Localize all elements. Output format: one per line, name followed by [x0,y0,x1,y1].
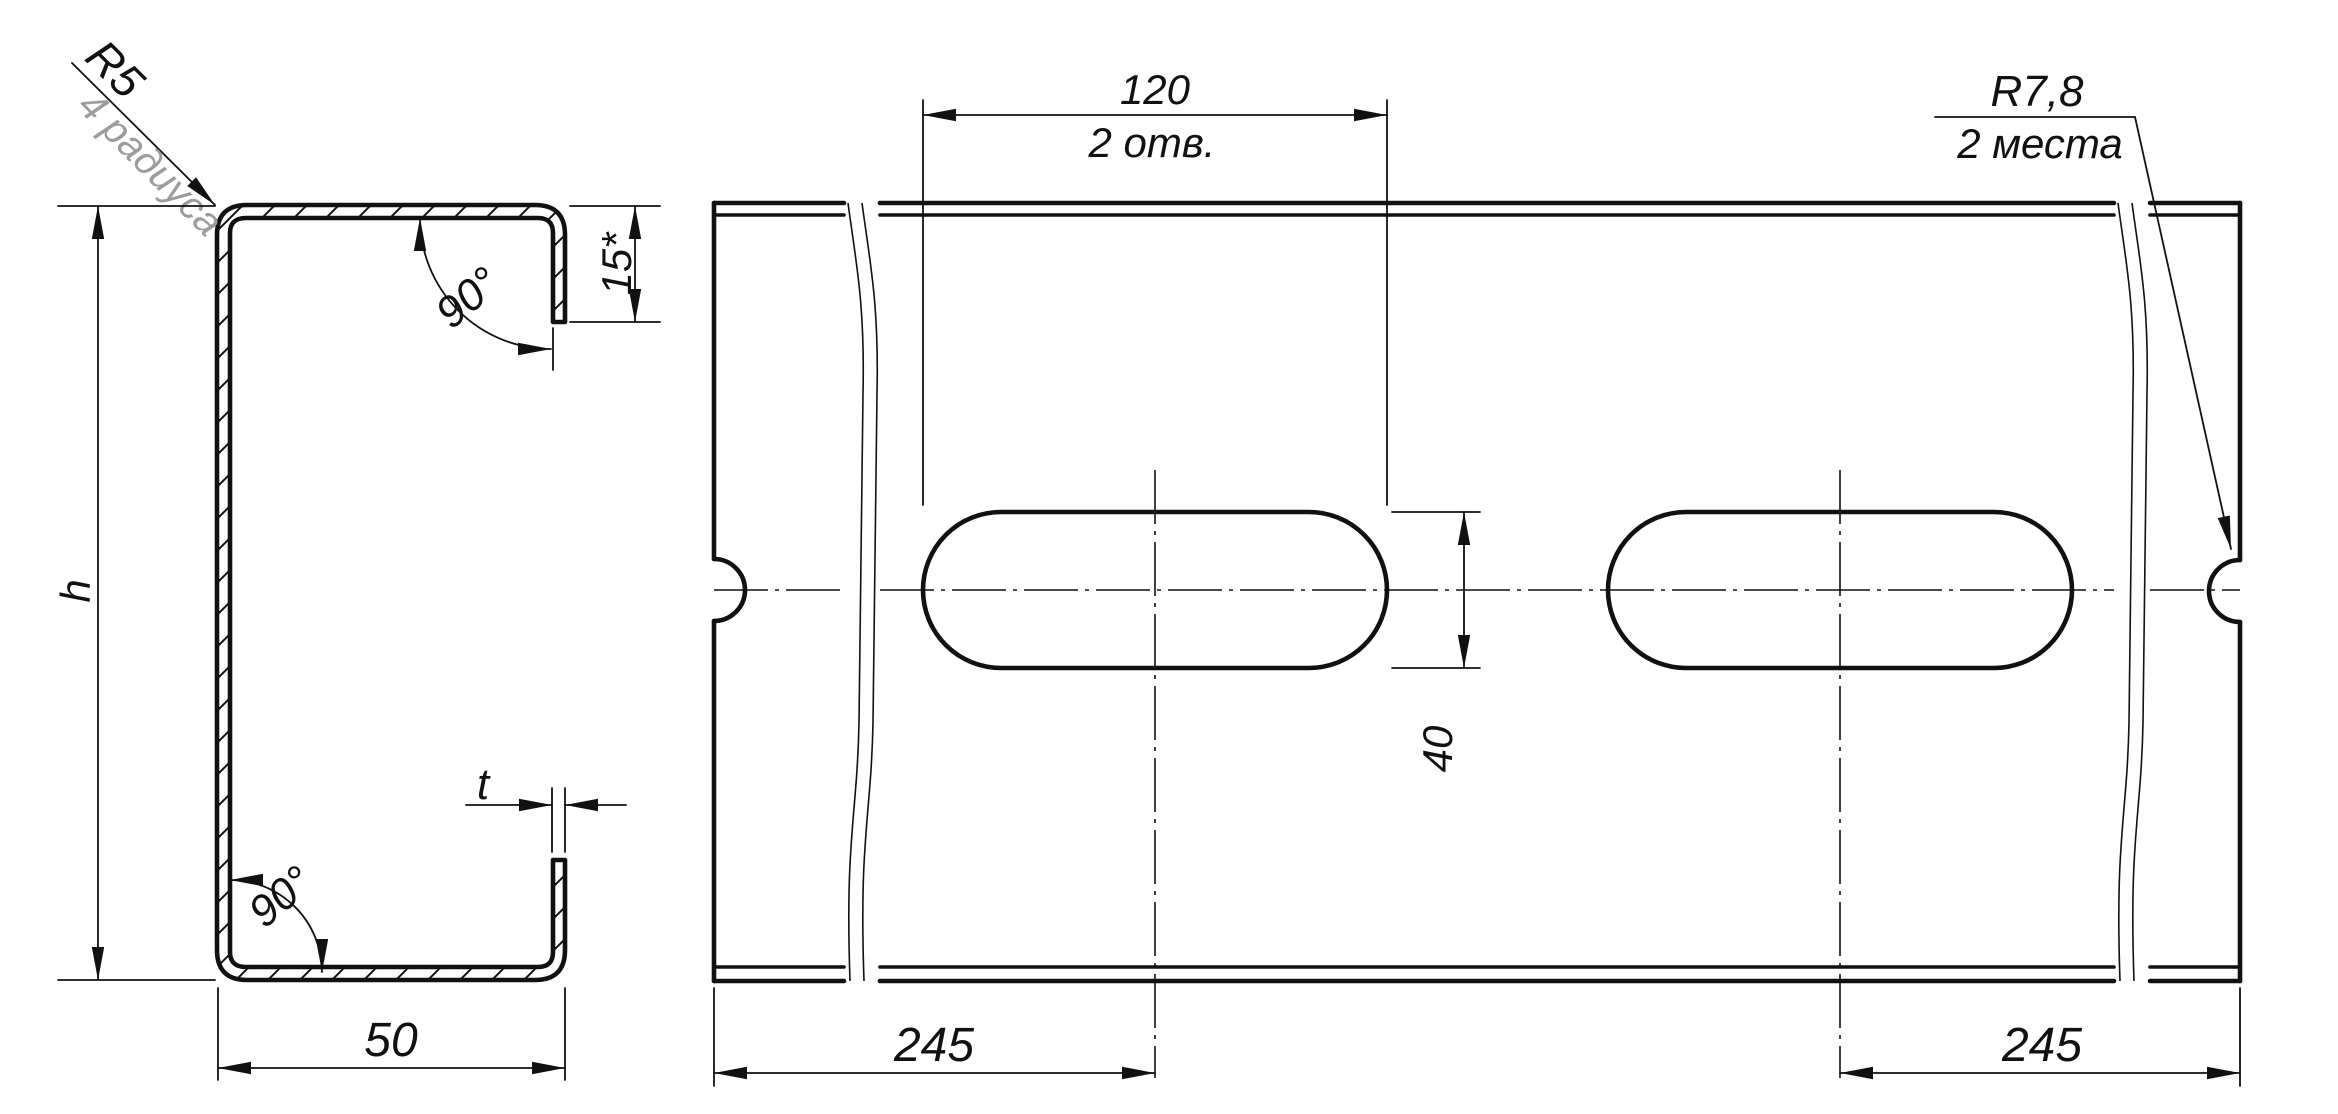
height-label: h [52,579,99,602]
dimension-arrow-icon [519,799,552,811]
notch-places-label: 2 места [1956,120,2123,167]
dimension-arrow-icon [92,947,104,980]
technical-drawing-canvas: R5 4 радиуса h 15* 90° [0,0,2338,1114]
break-line [2118,203,2133,981]
dimension-arrow-icon [218,1062,251,1074]
dimension-arrow-icon [714,1067,747,1079]
offset-right-label: 245 [2001,1019,2082,1072]
angle-dimension-bottom: 90° [230,857,328,972]
center-lines [714,470,2240,1078]
dimension-arrow-icon [92,206,104,239]
radius-callout: R5 4 радиуса [69,30,231,245]
slot-count-label: 2 отв. [1088,119,1216,166]
dimension-thickness-t: t [466,760,626,852]
dimension-arrow-icon [1840,1067,1873,1079]
right-notch-arc [2209,560,2240,622]
dimension-arrow-icon [1354,109,1387,121]
dimension-arrow-icon [532,1062,565,1074]
lip-length-label: 15* [593,231,640,296]
slot-length-label: 120 [1120,66,1191,113]
angle-dimension-top: 90° [414,218,553,370]
offset-left-label: 245 [893,1019,974,1072]
drawing-sheet: R5 4 радиуса h 15* 90° [0,0,2338,1114]
dimension-arrow-icon [1458,635,1470,668]
dimension-arrow-icon [1122,1067,1155,1079]
cross-section-view: R5 4 радиуса h 15* 90° [52,30,660,1080]
leader-arrow-icon [2218,515,2237,550]
notch-radius-label: R7,8 [1991,67,2084,116]
break-line [848,203,863,981]
channel-wall-section [217,205,565,980]
break-line [862,203,877,981]
flange-width-label: 50 [364,1014,418,1067]
dimension-slot-width-40: 40 [1392,512,1480,772]
dimension-offset-left-245: 245 [714,988,1155,1086]
dimension-width-50: 50 [218,988,565,1080]
angle-arrow-icon [414,218,426,251]
thickness-label: t [477,760,491,809]
radius-callout-note: 4 радиуса [69,83,231,245]
dimension-offset-right-245: 245 [1840,988,2240,1086]
dimension-height-h: h [52,206,215,980]
plate-outline [714,203,2240,981]
notch-radius-callout: R7,8 2 места [1935,67,2237,550]
face-view: 120 2 отв. 40 R7,8 2 места 245 [714,66,2240,1086]
angle-arrow-icon [518,343,551,355]
dimension-slot-length-120: 120 2 отв. [923,66,1387,505]
slot-width-label: 40 [1414,725,1461,772]
dimension-arrow-icon [565,799,598,811]
dimension-arrow-icon [923,109,956,121]
dimension-arrow-icon [1458,512,1470,545]
top-angle-label: 90° [426,258,508,338]
leader-line [2135,117,2231,549]
break-lines [848,203,2147,981]
break-line [2132,203,2147,981]
dimension-arrow-icon [2207,1067,2240,1079]
dimension-lip-15: 15* [570,206,660,322]
